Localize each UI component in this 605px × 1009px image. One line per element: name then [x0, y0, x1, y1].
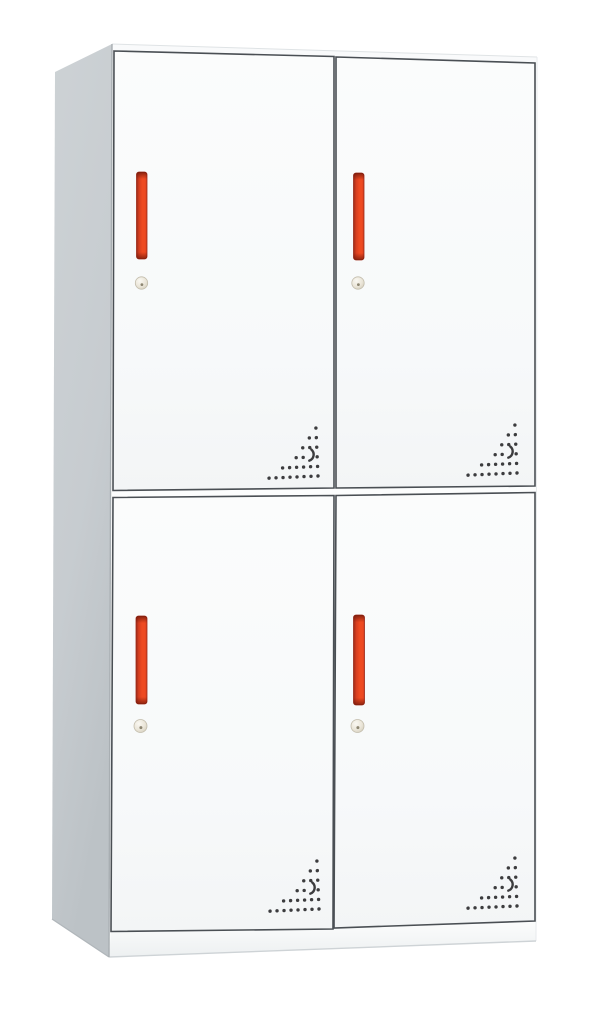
door-panel — [336, 57, 535, 488]
locker-cabinet — [0, 0, 605, 1009]
door-panel — [113, 51, 334, 491]
cabinet-front — [109, 44, 537, 957]
locker-door-bottom-left — [111, 496, 334, 932]
locker-door-bottom-right — [334, 493, 535, 929]
door-handle — [354, 615, 365, 705]
keyhole — [351, 720, 364, 733]
door-handle — [137, 172, 148, 259]
door-panel — [111, 496, 334, 932]
locker-door-top-left — [113, 51, 334, 491]
door-handle — [136, 616, 147, 704]
keyhole — [134, 720, 147, 733]
cabinet-side-panel — [52, 44, 112, 957]
keyhole — [135, 277, 147, 289]
keyhole — [352, 277, 364, 289]
door-handle — [354, 173, 365, 260]
locker-door-top-right — [336, 57, 535, 488]
product-photo — [0, 0, 605, 1009]
door-panel — [334, 493, 535, 929]
